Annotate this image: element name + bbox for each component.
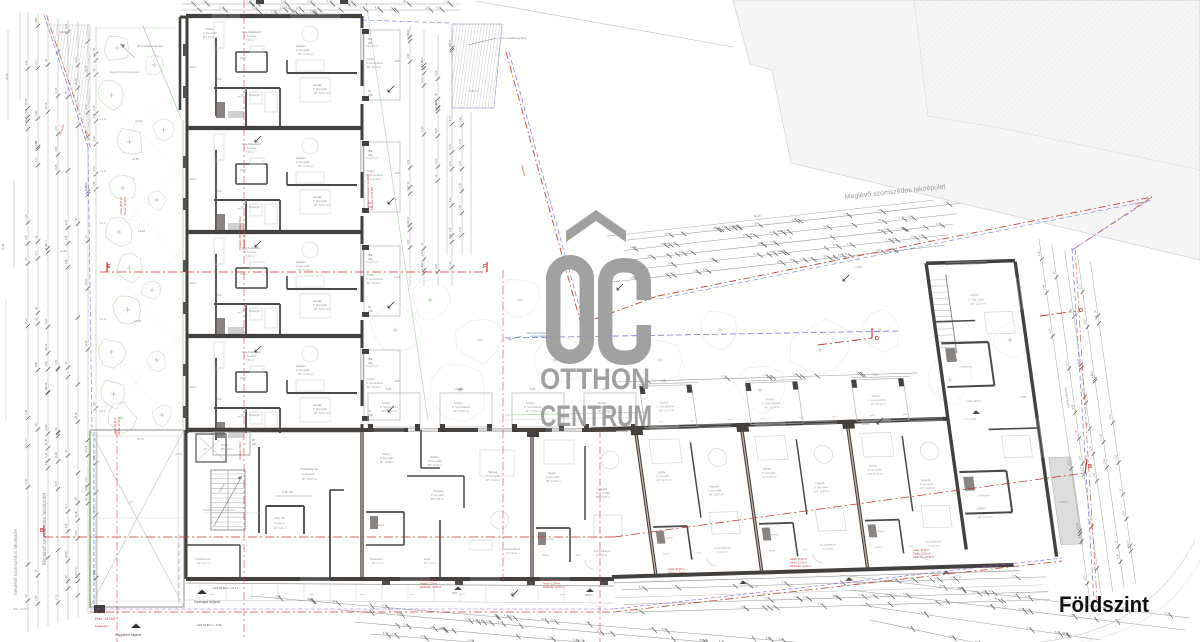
svg-text:1,20: 1,20: [458, 138, 462, 144]
svg-text:Lakás: 46,35 m²: Lakás: 46,35 m²: [114, 417, 117, 435]
svg-text:2,0 %: 2,0 %: [100, 319, 106, 321]
svg-text:P. kerámia: P. kerámia: [717, 551, 729, 554]
svg-text:2,35: 2,35: [486, 619, 492, 623]
svg-text:Zöldterület: 24,66 m²: Zöldterület: 24,66 m²: [543, 586, 564, 589]
svg-text:MT: 13,07 m²: MT: 13,07 m²: [314, 411, 329, 415]
svg-text:P. kerámia: P. kerámia: [506, 552, 517, 555]
svg-text:Közl.: Közl.: [217, 294, 223, 297]
svg-text:Zuhanyzó: Zuhanyzó: [874, 531, 885, 533]
svg-text:P. lam.padló: P. lam.padló: [313, 407, 328, 411]
svg-text:3,02: 3,02: [406, 159, 410, 165]
svg-text:P. lam.padló: P. lam.padló: [313, 199, 328, 203]
svg-text:1,40: 1,40: [360, 6, 366, 10]
svg-text:4,77: 4,77: [44, 240, 48, 246]
svg-text:2,84: 2,84: [448, 160, 452, 166]
svg-text:P. vam.kerámia: P. vam.kerámia: [452, 405, 470, 409]
svg-text:MT: 12,05 m²: MT: 12,05 m²: [367, 282, 382, 285]
svg-text:MT: 33,06 m²: MT: 33,06 m²: [971, 301, 987, 305]
svg-text:Nappali: Nappali: [488, 470, 498, 474]
svg-text:4,77: 4,77: [34, 59, 38, 65]
svg-text:MT: 6,02 m²: MT: 6,02 m²: [431, 498, 444, 501]
svg-text:3,80: 3,80: [34, 361, 38, 367]
svg-text:11,45: 11,45: [74, 510, 78, 517]
svg-text:MT: 14,26 m²: MT: 14,26 m²: [298, 164, 313, 168]
svg-text:MT: 2,06 m²: MT: 2,06 m²: [221, 448, 234, 451]
svg-text:Szoba: Szoba: [763, 467, 772, 471]
svg-text:+0,70 +0,53: +0,70 +0,53: [963, 418, 977, 421]
svg-text:P. lam.padló: P. lam.padló: [380, 457, 394, 460]
svg-text:4,30: 4,30: [1113, 454, 1118, 460]
svg-text:Szoba: Szoba: [382, 452, 390, 456]
svg-text:Előtér: Előtér: [190, 178, 197, 181]
svg-text:Zöldterület: 24,66 m²: Zöldterület: 24,66 m²: [420, 586, 441, 589]
svg-text:Konyha/Étkező: Konyha/Étkező: [242, 29, 261, 34]
svg-text:P. lam.padló: P. lam.padló: [656, 475, 671, 478]
svg-text:P. kerámia: P. kerámia: [302, 472, 315, 476]
svg-text:Nappali: Nappali: [921, 478, 931, 482]
svg-text:Akad. WC: Akad. WC: [274, 517, 285, 520]
svg-text:+0,49: +0,49: [135, 119, 142, 123]
svg-text:2,35: 2,35: [733, 223, 739, 228]
svg-text:MT: 34,34 m²: MT: 34,34 m²: [486, 479, 501, 482]
svg-text:250: 250: [368, 361, 373, 365]
svg-text:Szoba: Szoba: [313, 83, 321, 87]
svg-text:2,40: 2,40: [1082, 319, 1087, 325]
svg-text:Terasz: Terasz: [765, 397, 774, 401]
svg-text:P. lam.padló: P. lam.padló: [868, 468, 883, 471]
svg-text:Zuhanyzó: Zuhanyzó: [249, 310, 261, 313]
svg-text:Zuhanyzó: Zuhanyzó: [249, 414, 261, 417]
svg-text:P. lam.padló: P. lam.padló: [814, 486, 829, 489]
svg-text:Fürdőszoba: Fürdőszoba: [960, 365, 974, 368]
svg-text:2,72: 2,72: [84, 477, 88, 483]
svg-text:P. kerámia: P. kerámia: [244, 146, 257, 150]
svg-text:prk 0: prk 0: [460, 593, 466, 596]
svg-text:MT: 19,80 m²: MT: 19,80 m²: [596, 496, 611, 499]
svg-text:Gyalogos bejárat: Gyalogos bejárat: [194, 600, 220, 604]
svg-text:1,20: 1,20: [458, 160, 462, 166]
svg-text:6,20: 6,20: [434, 127, 438, 133]
svg-text:300: 300: [368, 253, 373, 257]
svg-text:4,30: 4,30: [1047, 328, 1052, 334]
svg-text:P. lam.padló: P. lam.padló: [313, 87, 328, 91]
svg-text:3,75: 3,75: [448, 115, 452, 121]
svg-text:4,25: 4,25: [766, 375, 772, 379]
svg-text:MT: 14,26 m²: MT: 14,26 m²: [298, 52, 313, 56]
svg-text:+0,55: +0,55: [132, 157, 139, 161]
svg-text:25,16: 25,16: [64, 551, 68, 558]
svg-text:11,45: 11,45: [44, 424, 48, 431]
svg-text:1,98: 1,98: [1041, 284, 1046, 290]
svg-text:+116,10 Bmf = -0,05: +116,10 Bmf = -0,05: [196, 623, 222, 627]
svg-text:prk 0: prk 0: [360, 593, 366, 596]
svg-text:3,75: 3,75: [434, 99, 438, 105]
svg-text:MT: 19,80 m²: MT: 19,80 m²: [920, 487, 935, 490]
svg-text:3,71: 3,71: [1074, 430, 1079, 436]
svg-text:6,20: 6,20: [348, 0, 354, 4]
svg-text:6,25: 6,25: [54, 480, 58, 486]
svg-text:Előtér: Előtér: [190, 282, 197, 285]
svg-text:P. lam.padló: P. lam.padló: [203, 31, 218, 35]
svg-text:3,80: 3,80: [34, 110, 38, 116]
svg-text:6,20: 6,20: [382, 603, 388, 607]
svg-text:6,20: 6,20: [448, 197, 452, 203]
svg-text:prk 0: prk 0: [560, 593, 566, 596]
svg-text:Közl.: Közl.: [217, 78, 223, 81]
svg-text:4,25: 4,25: [799, 256, 805, 261]
svg-text:MT: 12,05 m²: MT: 12,05 m²: [367, 66, 382, 69]
svg-text:Tervezett: 118,40 Bmf: Tervezett: 118,40 Bmf: [371, 187, 374, 210]
svg-text:6,25: 6,25: [34, 140, 38, 146]
svg-text:1,40: 1,40: [292, 10, 298, 14]
svg-text:2,84: 2,84: [1121, 510, 1126, 516]
svg-text:Terasz: Terasz: [542, 554, 550, 557]
svg-text:3,10: 3,10: [391, 632, 397, 636]
svg-text:1,35: 1,35: [92, 113, 96, 119]
svg-text:3,92: 3,92: [44, 318, 48, 324]
svg-text:Szoba: Szoba: [205, 27, 213, 31]
svg-text:Terasz: 12,54 m²: Terasz: 12,54 m²: [543, 583, 560, 586]
svg-text:4,30: 4,30: [1036, 251, 1041, 257]
svg-text:Hrsz.: 8137/2: Hrsz.: 8137/2: [13, 607, 29, 611]
svg-text:2,35: 2,35: [219, 6, 225, 10]
svg-text:Földszint: Földszint: [1059, 592, 1149, 617]
svg-text:D: D: [875, 336, 879, 342]
svg-text:11,45: 11,45: [54, 452, 58, 459]
svg-text:Lakótér: Lakótér: [969, 293, 979, 297]
svg-text:MT: 13,53 m²: MT: 13,53 m²: [382, 409, 397, 413]
svg-text:6,25: 6,25: [64, 219, 68, 225]
svg-text:25,16: 25,16: [24, 98, 28, 105]
svg-text:MT: 12,10 m²: MT: 12,10 m²: [428, 464, 443, 467]
svg-text:2,17: 2,17: [281, 0, 287, 4]
svg-text:5,30: 5,30: [823, 223, 829, 228]
svg-text:Előtér: Előtér: [424, 558, 430, 561]
svg-text:11,45: 11,45: [44, 438, 48, 445]
svg-text:Lakás: 46,35 m²: Lakás: 46,35 m²: [790, 558, 807, 561]
svg-text:2,0 %: 2,0 %: [100, 411, 106, 413]
svg-text:6,25: 6,25: [54, 164, 58, 170]
svg-text:Konyha/Étkező: Konyha/Étkező: [926, 540, 943, 543]
svg-text:Lakás: 46,35 m²: Lakás: 46,35 m²: [420, 579, 437, 582]
svg-text:Nappali: Nappali: [815, 481, 825, 485]
svg-text:P. lam.padló: P. lam.padló: [431, 494, 445, 497]
svg-text:Lakás: 46,35 m²: Lakás: 46,35 m²: [543, 579, 560, 582]
svg-text:P. lam.padló: P. lam.padló: [920, 483, 935, 486]
svg-text:+118,28 Bmf = +0,13: +118,28 Bmf = +0,13: [212, 586, 238, 590]
svg-text:Szoba: Szoba: [313, 299, 321, 303]
svg-text:Nappali: Nappali: [296, 44, 306, 48]
svg-text:Szekr.: Szekr.: [240, 273, 247, 276]
svg-text:3,75: 3,75: [448, 39, 452, 45]
svg-text:MT: 5,10 m²: MT: 5,10 m²: [424, 562, 436, 565]
svg-text:6,20: 6,20: [406, 185, 410, 191]
svg-text:Hrsz.: 8173/9: Hrsz.: 8173/9: [95, 617, 115, 621]
svg-text:+0,70: +0,70: [137, 437, 144, 441]
svg-text:prk 0: prk 0: [260, 593, 266, 596]
svg-text:MT: 34,00 m²: MT: 34,00 m²: [302, 477, 317, 481]
svg-text:4,30: 4,30: [1108, 414, 1113, 420]
svg-text:2,35: 2,35: [548, 635, 554, 639]
svg-text:97,00 m²: 97,00 m²: [1059, 501, 1069, 504]
svg-text:2,72: 2,72: [54, 594, 58, 600]
svg-text:Szoba: Szoba: [548, 471, 556, 475]
svg-text:P. kerámia: P. kerámia: [596, 554, 607, 557]
svg-text:Lakás: 46,35 m²: Lakás: 46,35 m²: [668, 568, 685, 571]
svg-text:250: 250: [368, 413, 373, 417]
svg-text:MT: 14,26 m²: MT: 14,26 m²: [298, 268, 313, 272]
svg-text:Terasz: Terasz: [871, 394, 880, 398]
svg-text:7,50 m²: 7,50 m²: [246, 150, 255, 154]
svg-text:2,90: 2,90: [908, 214, 914, 219]
svg-text:MT: 13,05 m²: MT: 13,05 m²: [868, 472, 883, 475]
svg-text:Terasz: 12,54 m²: Terasz: 12,54 m²: [913, 553, 930, 556]
svg-text:7,50 m²: 7,50 m²: [246, 38, 255, 42]
svg-text:P. lam.padló: P. lam.padló: [296, 368, 311, 372]
svg-text:prk 0: prk 0: [410, 593, 416, 596]
svg-text:2,17: 2,17: [465, 617, 471, 621]
svg-text:2,84: 2,84: [434, 263, 438, 269]
svg-text:5,36: 5,36: [1075, 522, 1080, 528]
svg-text:Közl.: Közl.: [217, 190, 223, 193]
svg-text:24,18: 24,18: [753, 213, 761, 218]
svg-text:3,75: 3,75: [420, 57, 424, 63]
svg-text:1,20: 1,20: [458, 204, 462, 210]
svg-text:Zuhanyzó: Zuhanyzó: [249, 206, 261, 209]
svg-text:2,90: 2,90: [275, 594, 281, 598]
svg-text:1,40: 1,40: [498, 620, 504, 624]
svg-text:77,60 m²: 77,60 m²: [468, 89, 478, 93]
svg-text:prk 0: prk 0: [310, 593, 316, 596]
svg-text:2,0 %: 2,0 %: [100, 171, 106, 173]
svg-text:Konyha/Étkező: Konyha/Étkező: [242, 141, 261, 146]
svg-text:P. lam.padló: P. lam.padló: [546, 476, 560, 479]
svg-text:1,98: 1,98: [1098, 434, 1103, 440]
svg-text:Szekr.: Szekr.: [240, 57, 247, 60]
svg-text:Nappali: Nappali: [296, 364, 306, 368]
svg-text:3,80: 3,80: [92, 136, 96, 142]
svg-text:1,35: 1,35: [44, 452, 48, 458]
svg-text:P. kerámia: P. kerámia: [244, 34, 257, 38]
svg-text:Gépjármű bejárat: Gépjármű bejárat: [115, 633, 141, 637]
svg-text:Terasz: Terasz: [367, 273, 376, 277]
svg-text:2,84: 2,84: [1102, 459, 1107, 465]
svg-text:MT: 13,07 m²: MT: 13,07 m²: [314, 203, 329, 207]
svg-text:P. lam.padló: P. lam.padló: [596, 492, 610, 495]
svg-text:Terasz: Terasz: [367, 169, 376, 173]
svg-text:3,71: 3,71: [1086, 518, 1091, 524]
svg-text:4,30: 4,30: [1066, 460, 1071, 466]
svg-text:3,92: 3,92: [64, 523, 68, 529]
svg-text:3,02: 3,02: [434, 70, 438, 76]
svg-text:Közl.: Közl.: [909, 546, 915, 548]
svg-text:Szekr.: Szekr.: [240, 169, 247, 172]
svg-text:Terasz: 12,54 m²: Terasz: 12,54 m²: [118, 416, 121, 435]
svg-text:+1,00: +1,00: [855, 265, 862, 269]
svg-text:1,20: 1,20: [458, 182, 462, 188]
svg-text:1,98: 1,98: [1069, 308, 1074, 314]
svg-text:3,10: 3,10: [579, 638, 585, 642]
svg-text:Terasz: Terasz: [526, 401, 535, 405]
svg-text:4,30: 4,30: [1082, 575, 1087, 581]
svg-text:25,16: 25,16: [84, 445, 88, 452]
svg-text:Terasz: 12,54 m²: Terasz: 12,54 m²: [420, 583, 437, 586]
svg-text:6,20: 6,20: [448, 144, 452, 150]
svg-text:1,40: 1,40: [584, 620, 590, 624]
svg-text:D: D: [1079, 308, 1083, 314]
svg-text:P. lam.padló: P. lam.padló: [296, 160, 311, 164]
svg-text:Zuhanyzó: Zuhanyzó: [663, 537, 674, 539]
svg-text:2,17: 2,17: [445, 0, 451, 4]
svg-text:1,35: 1,35: [24, 214, 28, 220]
svg-text:+0,53: +0,53: [394, 380, 401, 383]
svg-text:4,77: 4,77: [34, 156, 38, 162]
svg-text:Szoba: Szoba: [313, 403, 321, 407]
svg-text:Terasz: Terasz: [382, 401, 391, 405]
svg-text:25,16: 25,16: [74, 412, 78, 419]
svg-text:MT: 12,86 m²: MT: 12,86 m²: [380, 461, 395, 464]
svg-text:MT: 4,90 m²: MT: 4,90 m²: [274, 527, 287, 530]
svg-text:P. vam.kerámia: P. vam.kerámia: [656, 404, 675, 409]
svg-text:+0,53: +0,53: [394, 276, 401, 279]
svg-text:250: 250: [368, 153, 373, 157]
svg-text:Zuhanyzó: Zuhanyzó: [544, 539, 555, 541]
svg-text:Szoba: Szoba: [313, 195, 321, 199]
svg-text:3,10: 3,10: [468, 638, 474, 642]
svg-text:P. kerámia: P. kerámia: [244, 354, 257, 358]
svg-text:3,50: 3,50: [312, 10, 318, 14]
svg-text:1,20: 1,20: [458, 226, 462, 232]
svg-text:6,22: 6,22: [24, 108, 28, 114]
svg-text:Konyha/Étkező: Konyha/Étkező: [594, 550, 611, 553]
svg-text:MT: 13,05 m²: MT: 13,05 m²: [762, 476, 777, 479]
svg-text:2,90: 2,90: [780, 248, 786, 253]
svg-text:1,40: 1,40: [648, 626, 654, 630]
svg-text:3,71: 3,71: [1089, 371, 1094, 377]
svg-text:Hő és Salakanyag depo: Hő és Salakanyag depo: [137, 45, 164, 48]
svg-text:2,84: 2,84: [420, 251, 424, 257]
svg-text:Zuhanyzó: Zuhanyzó: [374, 525, 385, 527]
svg-text:MT: 13,07 m²: MT: 13,07 m²: [314, 307, 329, 311]
svg-text:Konyha/Étkező: Konyha/Étkező: [820, 543, 837, 546]
svg-text:4,25: 4,25: [872, 372, 878, 376]
svg-text:P. vam.kerámia: P. vam.kerámia: [366, 382, 384, 385]
svg-text:3,02: 3,02: [434, 158, 438, 164]
svg-text:6,22: 6,22: [92, 105, 96, 111]
svg-text:2,0 %: 2,0 %: [100, 119, 106, 121]
svg-text:3,80: 3,80: [54, 146, 58, 152]
svg-text:+0,68: +0,68: [862, 422, 869, 426]
svg-text:P. vam.kerámia: P. vam.kerámia: [868, 398, 887, 403]
svg-text:Telekhatár: Telekhatár: [95, 624, 108, 628]
svg-text:006 A: 006 A: [585, 593, 593, 597]
svg-text:1,35: 1,35: [24, 235, 28, 241]
svg-text:3,75: 3,75: [448, 233, 452, 239]
svg-text:+0,53: +0,53: [630, 245, 637, 249]
svg-text:Oldalkert: 135 m²: Oldalkert: 135 m²: [239, 441, 242, 460]
svg-text:46,02 m²: 46,02 m²: [60, 30, 70, 34]
svg-text:3,71: 3,71: [1079, 466, 1084, 472]
svg-text:2,90: 2,90: [429, 625, 435, 629]
svg-text:006 B 006 C: 006 B 006 C: [966, 399, 981, 403]
svg-text:5,30: 5,30: [383, 631, 389, 635]
svg-text:Előtér: Előtér: [190, 386, 197, 389]
svg-text:Terasz: Terasz: [454, 401, 463, 405]
svg-text:2,35: 2,35: [843, 211, 849, 216]
svg-text:2,40: 2,40: [1126, 542, 1131, 548]
svg-text:P. kerámia: P. kerámia: [928, 544, 940, 547]
svg-text:3,36: 3,36: [406, 53, 410, 59]
svg-text:Lakás: 46,35 m²: Lakás: 46,35 m²: [120, 197, 123, 215]
svg-text:P. lam.padló: P. lam.padló: [486, 475, 500, 478]
svg-text:P. vam.kerámia: P. vam.kerámia: [380, 405, 398, 409]
svg-text:36,30: 36,30: [5, 73, 9, 80]
svg-text:3,36: 3,36: [448, 227, 452, 233]
svg-text:Előtér: Előtér: [190, 66, 197, 69]
svg-text:5,36: 5,36: [1115, 553, 1120, 559]
svg-text:Lift: Lift: [203, 447, 207, 451]
svg-text:Szoba: Szoba: [869, 464, 878, 468]
svg-text:5,30: 5,30: [202, 0, 208, 4]
svg-text:P. lam.padló: P. lam.padló: [708, 489, 723, 492]
svg-text:MT: 13,53 m²: MT: 13,53 m²: [764, 405, 780, 409]
svg-text:4,25: 4,25: [286, 6, 292, 10]
svg-text:Lakótér: Lakótér: [976, 506, 986, 510]
svg-text:250: 250: [368, 93, 373, 97]
svg-text:6,20: 6,20: [327, 0, 333, 4]
svg-text:4,25: 4,25: [898, 225, 904, 230]
svg-text:2,0 %: 2,0 %: [100, 223, 106, 225]
svg-text:1,35: 1,35: [34, 595, 38, 601]
svg-text:2,35: 2,35: [403, 622, 409, 626]
svg-text:300: 300: [368, 149, 373, 153]
svg-text:6,20: 6,20: [838, 252, 844, 257]
svg-text:3,71: 3,71: [1077, 284, 1082, 290]
svg-text:4,77: 4,77: [44, 459, 48, 465]
svg-text:MT: 15,06 m²: MT: 15,06 m²: [203, 35, 218, 39]
svg-text:2,72: 2,72: [74, 567, 78, 573]
svg-text:6,20: 6,20: [420, 126, 424, 132]
svg-text:Oldalkert: 135 m² Előkert: 56: Oldalkert: 135 m² Előkert: 56 m²: [239, 216, 242, 250]
svg-text:MT: 13,53 m²: MT: 13,53 m²: [454, 409, 469, 413]
svg-text:MT: 13,05 m²: MT: 13,05 m²: [656, 479, 671, 482]
svg-text:25,16: 25,16: [84, 279, 88, 286]
svg-text:Zöldfelület: 42 m²: Zöldfelület: 42 m²: [243, 231, 246, 250]
svg-text:MT: 4,10 m²: MT: 4,10 m²: [197, 562, 209, 565]
svg-text:MT: 4,37 m²: MT: 4,37 m²: [372, 562, 384, 565]
svg-text:+0,55: +0,55: [134, 319, 141, 323]
svg-text:Hulladéktároló: Hulladéktároló: [195, 558, 211, 561]
svg-text:+0,70: +0,70: [175, 452, 182, 456]
svg-text:005: 005: [452, 591, 457, 595]
svg-text:Közl.: Közl.: [803, 549, 809, 551]
svg-text:+0,55: +0,55: [60, 249, 67, 253]
svg-text:2,84: 2,84: [406, 239, 410, 245]
svg-text:1,35: 1,35: [92, 181, 96, 187]
svg-text:Közl.: Közl.: [576, 555, 581, 557]
svg-text:6,20: 6,20: [307, 0, 313, 4]
svg-text:25,16: 25,16: [24, 119, 28, 126]
svg-text:P. lam.padló: P. lam.padló: [296, 264, 311, 268]
svg-text:210: 210: [252, 443, 257, 446]
svg-text:Hő és Salakanyag depo: Hő és Salakanyag depo: [499, 36, 527, 40]
svg-text:3,02: 3,02: [420, 77, 424, 83]
svg-text:25,16: 25,16: [2, 243, 5, 250]
svg-text:3,02: 3,02: [406, 29, 410, 35]
svg-text:2,35: 2,35: [440, 626, 446, 630]
svg-text:2,90: 2,90: [296, 6, 302, 10]
svg-text:3,50: 3,50: [420, 634, 426, 638]
